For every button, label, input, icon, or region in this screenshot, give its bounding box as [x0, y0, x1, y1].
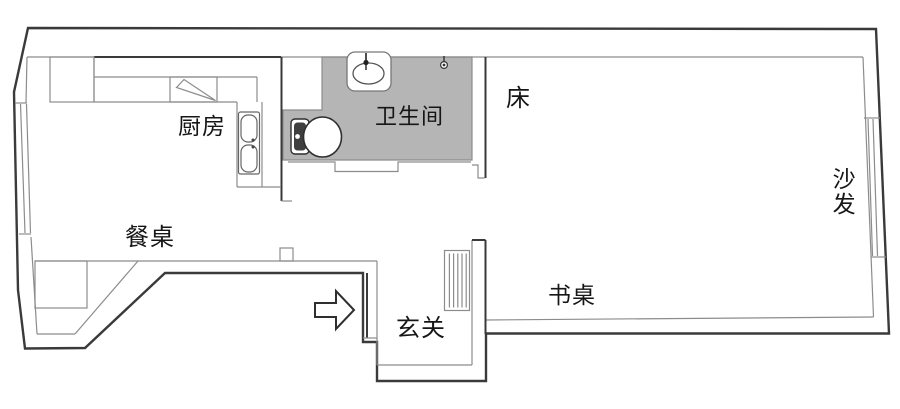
toilet-icon — [291, 117, 342, 157]
washbasin-icon — [347, 52, 391, 91]
kitchen-sink-icon — [239, 112, 260, 174]
floorplan-canvas: 厨房 卫生间 床 沙发 餐桌 书桌 玄关 — [0, 0, 900, 409]
kitchen-counter — [50, 57, 281, 187]
label-bathroom: 卫生间 — [375, 105, 444, 128]
label-entry: 玄关 — [396, 316, 446, 341]
radiator-icon — [445, 251, 470, 311]
label-desk: 书桌 — [548, 283, 596, 307]
label-bed: 床 — [506, 86, 531, 111]
cooktop-icon — [170, 77, 217, 102]
fridge-icon — [50, 57, 94, 102]
label-sofa: 沙发 — [830, 167, 854, 217]
wardrobe — [35, 261, 87, 308]
door-post — [280, 248, 293, 261]
label-dining-table: 餐桌 — [125, 225, 175, 250]
entrance-arrow-icon — [315, 291, 354, 329]
floorplan-drawing — [0, 0, 900, 409]
label-kitchen: 厨房 — [178, 114, 226, 138]
